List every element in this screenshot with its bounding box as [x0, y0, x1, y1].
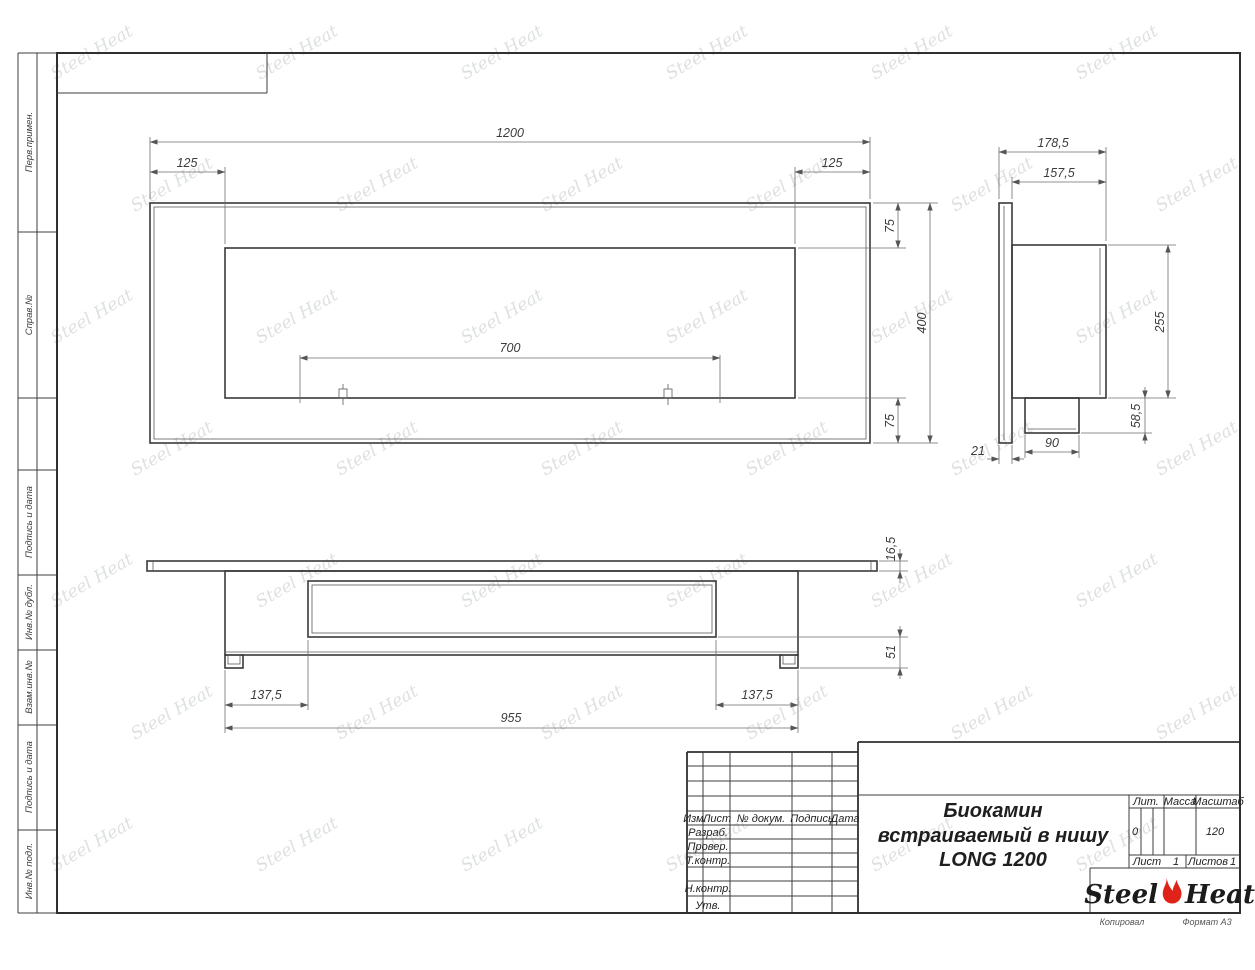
tb-scale-label: Масштаб [1192, 796, 1244, 808]
tb-col-docnum: № докум. [737, 813, 785, 825]
margin-table: Перв.примен. Справ.№ Подпись и дата Инв.… [18, 53, 57, 913]
watermark-text: Steel Heat [743, 417, 832, 480]
dim-side-tray-width: 90 [1045, 436, 1059, 450]
dim-plan-plate: 16,5 [884, 537, 898, 561]
tb-role-tkontr: Т.контр. [686, 855, 730, 867]
footer-notes: Копировал Формат А3 [1100, 917, 1232, 927]
watermark-text: Steel Heat [128, 417, 217, 480]
watermark-text: Steel Heat [1073, 549, 1162, 612]
dim-front-burner: 700 [500, 341, 521, 355]
tb-role-utv: Утв. [695, 900, 721, 912]
margin-label-podpis-1: Подпись и дата [24, 486, 35, 558]
margin-label-podpis-2: Подпись и дата [24, 741, 35, 813]
format-note: Формат А3 [1182, 917, 1231, 927]
dim-plan-left-inset: 137,5 [250, 688, 281, 702]
watermark-text: Steel Heat [1153, 153, 1242, 216]
dim-front-right-inset: 125 [822, 156, 843, 170]
tb-role-razrab: Разраб. [688, 827, 728, 839]
watermark-text: Steel Heat [48, 549, 137, 612]
watermark-text: Steel Heat [538, 681, 627, 744]
dim-plan-right-inset: 137,5 [741, 688, 772, 702]
watermark-text: Steel Heat [948, 681, 1037, 744]
logo: Steel Heat [1084, 876, 1255, 910]
watermark-text: Steel Heat [868, 549, 957, 612]
dim-front-top-margin: 75 [883, 219, 897, 233]
watermark-text: Steel Heat [128, 681, 217, 744]
watermark-text: Steel Heat [1073, 285, 1162, 348]
copied-note: Копировал [1100, 917, 1145, 927]
watermark-text: Steel Heat [458, 813, 547, 876]
drawing-sheet: Steel HeatSteel HeatSteel HeatSteel Heat… [0, 0, 1255, 970]
doc-title-line-3: LONG 1200 [939, 849, 1047, 871]
tb-lit-value: 0 [1132, 826, 1139, 838]
watermark-text: Steel Heat [1153, 417, 1242, 480]
margin-label-inv-podl: Инв.№ подл. [24, 843, 35, 899]
dim-side-body-depth: 157,5 [1043, 166, 1074, 180]
dim-plan-length: 955 [501, 711, 522, 725]
tb-col-list: Лист [702, 813, 731, 825]
drawing-canvas: Steel HeatSteel HeatSteel HeatSteel Heat… [0, 0, 1255, 970]
dim-side-inner-height: 255 [1153, 312, 1167, 334]
watermark-text: Steel Heat [333, 417, 422, 480]
dim-plan-base: 51 [884, 645, 898, 659]
doc-title-line-2: встраиваемый в нишу [878, 825, 1109, 847]
dim-front-height: 400 [915, 313, 929, 334]
margin-label-inv-dubl: Инв.№ дубл. [24, 584, 35, 640]
dim-side-flange-offset: 21 [970, 444, 985, 458]
tb-col-podpis: Подпись [790, 813, 834, 825]
tb-role-nkontr: Н.контр. [685, 883, 732, 895]
margin-label-perv: Перв.примен. [24, 112, 35, 173]
tb-lit-label: Лит. [1132, 796, 1159, 808]
tb-sheet-value: 1 [1173, 856, 1179, 868]
watermark-text: Steel Heat [538, 417, 627, 480]
dim-front-bottom-margin: 75 [883, 414, 897, 428]
margin-label-sprav: Справ.№ [24, 295, 35, 336]
flame-icon [1163, 876, 1182, 904]
dim-side-overall-depth: 178,5 [1037, 136, 1068, 150]
margin-label-vzam: Взам.инв.№ [24, 660, 35, 713]
doc-title-line-1: Биокамин [943, 800, 1042, 822]
watermark-text: Steel Heat [48, 813, 137, 876]
watermark-text: Steel Heat [48, 285, 137, 348]
watermark-text: Steel Heat [253, 285, 342, 348]
watermark-text: Steel Heat [948, 417, 1037, 480]
tb-col-data: Дата [828, 813, 859, 825]
logo-text-heat: Heat [1184, 880, 1255, 910]
logo-text-steel: Steel [1084, 880, 1158, 910]
watermark-text: Steel Heat [663, 285, 752, 348]
watermark-text: Steel Heat [868, 285, 957, 348]
watermark-text: Steel Heat [253, 813, 342, 876]
tb-scale-value: 120 [1206, 826, 1225, 838]
dim-front-left-inset: 125 [177, 156, 198, 170]
watermark-text: Steel Heat [333, 681, 422, 744]
title-block: Изм. Лист № докум. Подпись Дата Разраб. … [683, 742, 1255, 913]
dim-side-tray-height: 58,5 [1129, 404, 1143, 428]
tb-sheets-label: Листов [1187, 856, 1228, 868]
watermark-text: Steel Heat [948, 153, 1037, 216]
tb-role-prover: Провер. [688, 841, 729, 853]
tb-sheets-value: 1 [1230, 856, 1236, 868]
watermark-text: Steel Heat [458, 285, 547, 348]
watermark-text: Steel Heat [1153, 681, 1242, 744]
dim-front-overall: 1200 [496, 126, 524, 140]
tb-sheet-label: Лист [1132, 856, 1161, 868]
